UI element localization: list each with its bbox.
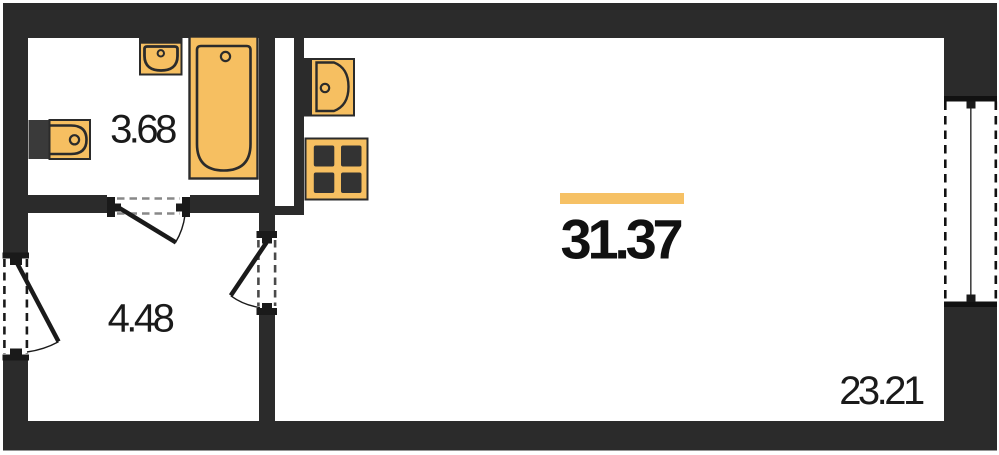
svg-text:3.68: 3.68 [110,108,176,152]
svg-text:31.37: 31.37 [561,208,682,271]
svg-text:23.21: 23.21 [839,369,924,413]
svg-text:4.48: 4.48 [108,297,174,341]
